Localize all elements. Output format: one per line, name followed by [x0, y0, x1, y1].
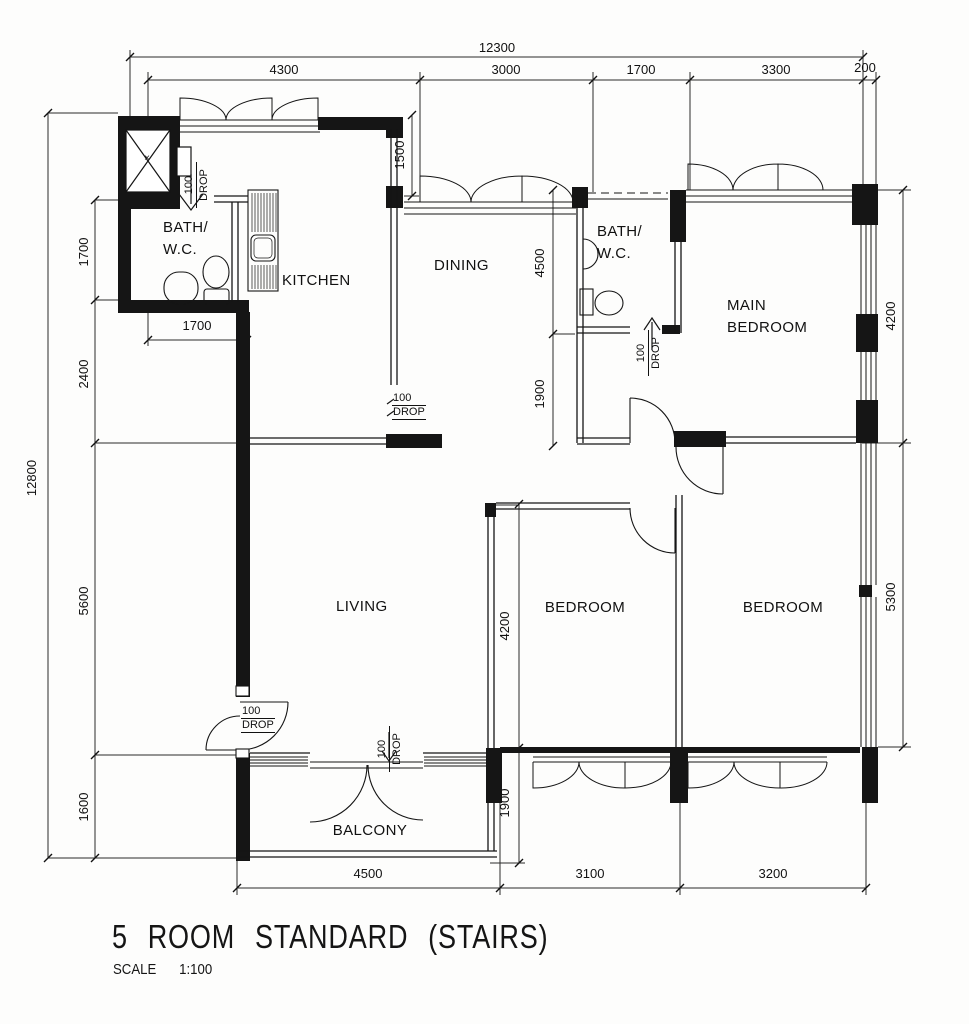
kitchen-sink [251, 235, 275, 261]
dim-corridor-depth: 1900 [532, 364, 548, 424]
dim-left-3: 5600 [76, 571, 92, 631]
dim-top-1: 4300 [254, 62, 314, 77]
dim-top-2: 3000 [476, 62, 536, 77]
room-label-balcony: BALCONY [331, 820, 409, 842]
drop-annotation-kitchen: 100DROP [392, 392, 426, 420]
drop-arrows [179, 174, 660, 761]
dim-right-1: 4200 [883, 286, 899, 346]
wc-pan-1 [164, 272, 198, 304]
dim-top-4: 3300 [746, 62, 806, 77]
bedroom-mid-door [630, 508, 675, 553]
drop-annotation-living-door: 100DROP [241, 705, 275, 733]
room-label-dining: DINING [434, 255, 489, 277]
drop-annotation-balcony: 100DROP [375, 726, 405, 772]
balcony-doors [310, 762, 423, 822]
scale-value: 1:100 [179, 961, 212, 978]
corridor-door [630, 398, 675, 443]
room-label-bedroom-mid: BEDROOM [544, 597, 626, 619]
doors [206, 398, 723, 822]
dim-left-total: 12800 [24, 448, 40, 508]
dim-left-1: 1700 [76, 222, 92, 282]
drawing-title: 5 ROOM STANDARD (STAIRS) [112, 918, 548, 956]
room-label-main-bedroom: MAINBEDROOM [727, 295, 807, 339]
dim-bath-width: 1700 [167, 318, 227, 333]
dim-dining-depth: 4500 [532, 233, 548, 293]
dim-balcony-depth: 1900 [497, 773, 513, 833]
floor-plan-page: 12300 4300 3000 1700 3300 200 12800 1700… [0, 0, 969, 1024]
dim-top-3: 1700 [611, 62, 671, 77]
drop-annotation-entrance: 100DROP [182, 162, 212, 208]
dim-bottom-1: 4500 [338, 866, 398, 881]
bedroom-right-door [676, 447, 723, 494]
dim-kitchen-recess: 1500 [392, 125, 408, 185]
dim-bottom-3: 3200 [743, 866, 803, 881]
dim-left-2: 2400 [76, 344, 92, 404]
dim-top-total: 12300 [457, 40, 537, 55]
drop-annotation-bath2: 100DROP [634, 330, 664, 376]
dim-top-5: 200 [841, 60, 889, 75]
wc-bowl [595, 291, 623, 315]
wc-cistern [580, 289, 593, 315]
dim-right-2: 5300 [883, 567, 899, 627]
dim-left-4: 1600 [76, 777, 92, 837]
dim-bedroom-depth: 4200 [497, 596, 513, 656]
room-label-bath2: BATH/W.C. [597, 221, 642, 265]
scale-label: SCALE [113, 961, 156, 978]
wash-basin [583, 239, 598, 269]
drawing-scale: SCALE1:100 [113, 961, 212, 978]
dim-bottom-2: 3100 [560, 866, 620, 881]
room-label-bedroom-right: BEDROOM [740, 597, 826, 619]
room-label-kitchen: KITCHEN [282, 270, 351, 292]
room-label-bath1: BATH/W.C. [163, 217, 208, 261]
lift-marker: × [140, 153, 154, 164]
room-label-living: LIVING [336, 596, 388, 618]
kitchen-counter [248, 190, 278, 291]
fixtures [164, 190, 623, 315]
